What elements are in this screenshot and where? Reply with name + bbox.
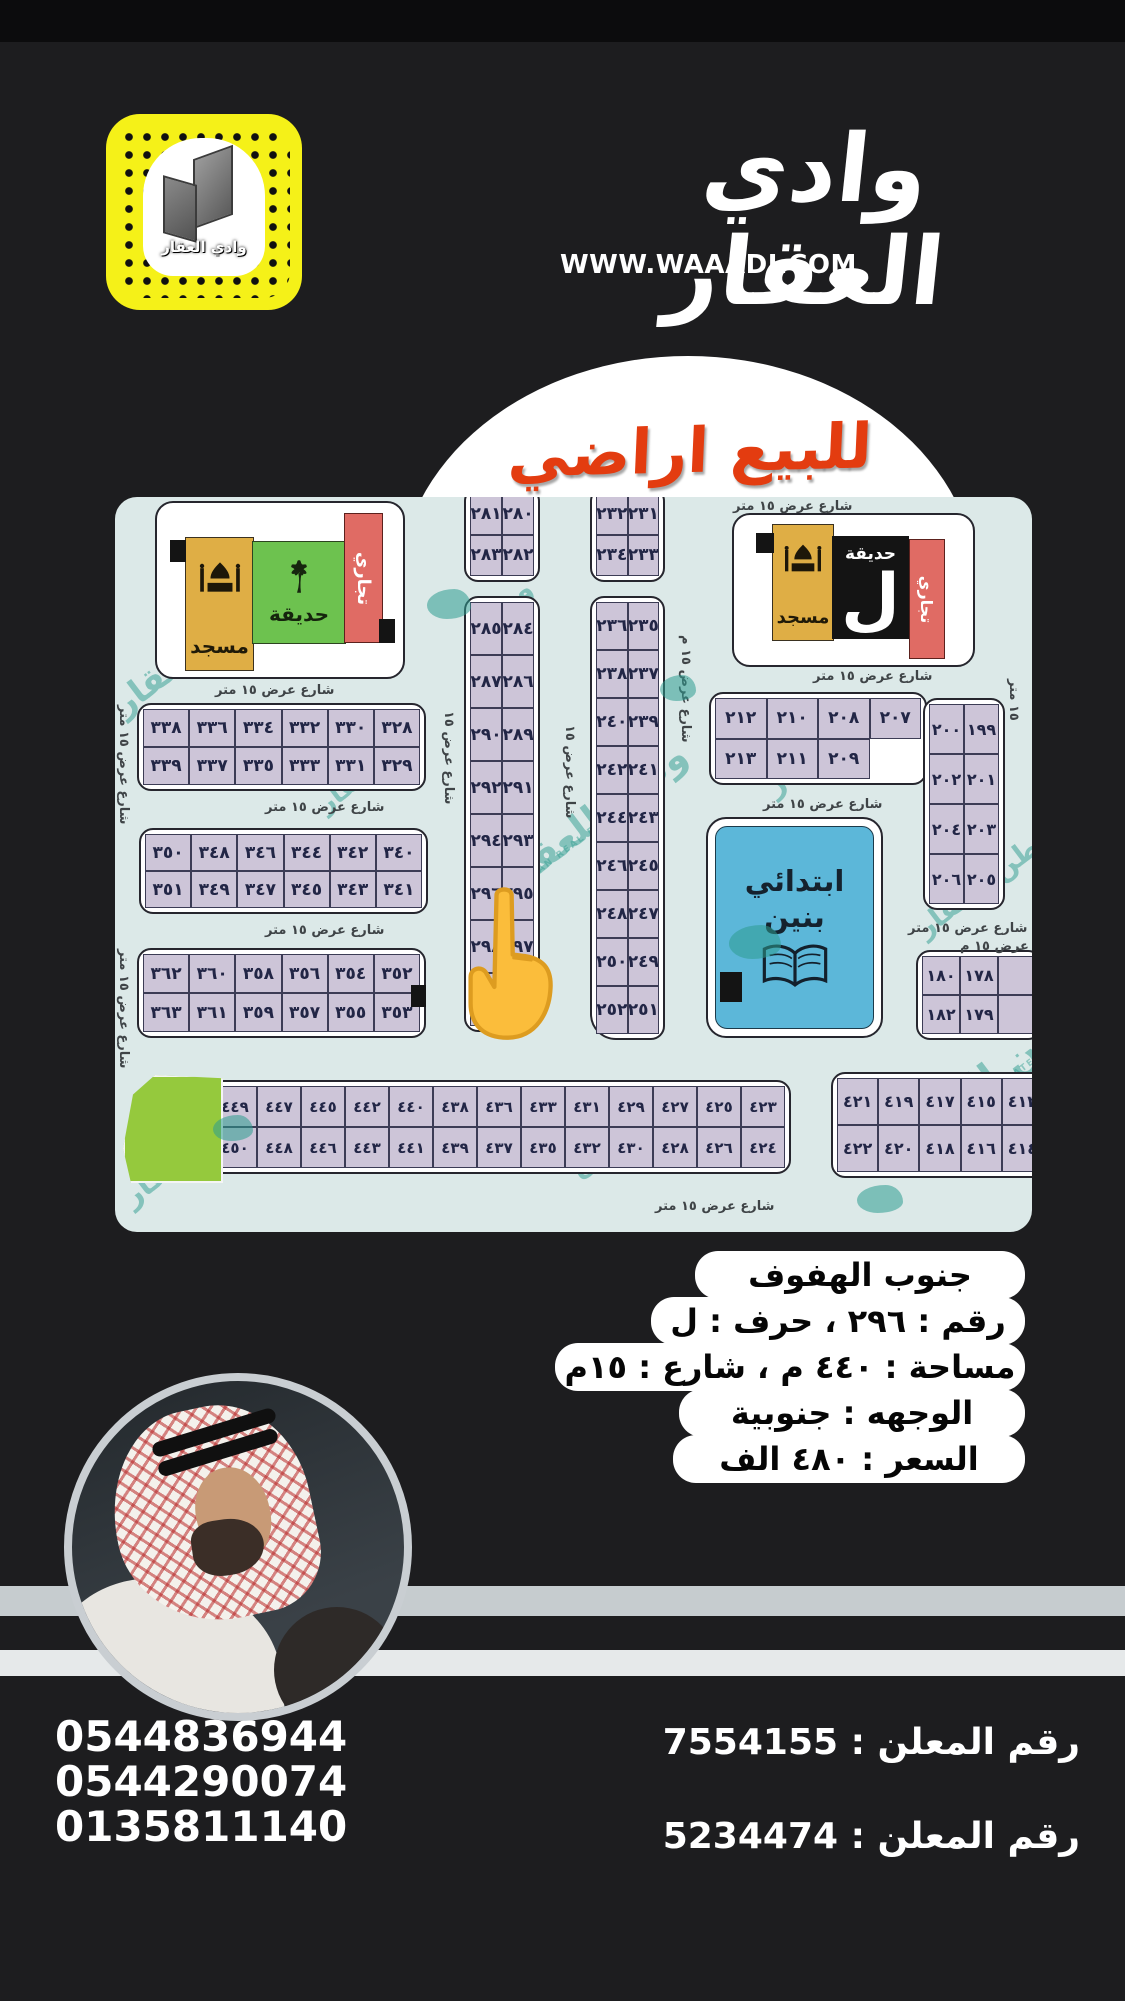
plot-cell: ٤٢٢ xyxy=(837,1125,878,1172)
school-label-line1: ابتدائي xyxy=(745,864,845,898)
commercial-parcel: تجاري xyxy=(909,539,945,659)
plot-grid: ٤٤٩٤٤٧٤٤٥٤٤٢٤٤٠٤٣٨٤٣٦٤٣٣٤٣١٤٢٩٤٢٧٤٢٥٤٢٣٤… xyxy=(213,1086,785,1168)
plot-cell: ٢٠٥ xyxy=(964,854,999,904)
advertiser-number-1: رقم المعلن : 7554155 xyxy=(663,1722,1080,1763)
plot-cell: ٤٣٦ xyxy=(477,1086,521,1127)
plot-cell: ٢٨١ xyxy=(470,497,502,535)
commercial-parcel: تجاري xyxy=(344,513,383,643)
mosque-icon xyxy=(783,543,823,573)
plot-cell: ٤٣٠ xyxy=(609,1127,653,1168)
plot-cell: ٢٨٢ xyxy=(502,535,534,577)
street-label: شارع عرض ١٥ متر xyxy=(763,797,882,812)
plot-cell: ٢٠٦ xyxy=(929,854,964,904)
plot-cell: ٣٣٧ xyxy=(189,747,235,785)
plot-cell: ٤٣١ xyxy=(565,1086,609,1127)
street-label: ١٥ متر xyxy=(1006,679,1021,721)
advertiser-label: رقم المعلن : xyxy=(851,1722,1080,1763)
plot-cell: ٢٨٤ xyxy=(502,602,534,655)
plot-cell: ٣٦٢ xyxy=(143,954,189,993)
plot-cell: ٢٩٠ xyxy=(470,708,502,761)
plot-cell: ٤٢٩ xyxy=(609,1086,653,1127)
plot-cell: ٢٤٤ xyxy=(596,794,628,842)
ad-poster: وادي العقار وادي العقار WWW.WAAADI.COM ل… xyxy=(0,0,1125,2001)
facility-block-east: مسجد حديقة ل تجاري xyxy=(732,513,975,667)
plot-cell: ٢٨٧ xyxy=(470,655,502,708)
plot-cell: ٢٠٣ xyxy=(964,804,999,854)
plot-cell: ٣٥٧ xyxy=(282,993,328,1032)
paint-splotch xyxy=(729,925,781,959)
plot-cell: ٢٠٧ xyxy=(870,698,922,739)
plot-cell: ٢٤٣ xyxy=(628,794,660,842)
plot-cell: ٢٤٦ xyxy=(596,842,628,890)
plot-cell: ٢٩٣ xyxy=(502,814,534,867)
plot-cell: ٤٤٨ xyxy=(257,1127,301,1168)
advertiser-number-2: رقم المعلن : 5234474 xyxy=(663,1816,1080,1857)
banner-title: للبيع اراضي xyxy=(418,407,961,494)
plot-cell: ٣٥٤ xyxy=(328,954,374,993)
plot-cell: ٢٥٠ xyxy=(596,938,628,986)
plot-cell: ٣٣٨ xyxy=(143,709,189,747)
plot-cell: ٢٤٠ xyxy=(596,698,628,746)
garden-label: حديقة xyxy=(269,602,329,626)
snapchat-snapcode: وادي العقار xyxy=(106,114,302,310)
garden-parcel: حديقة xyxy=(252,541,346,644)
plot-cell: ٢٠٨ xyxy=(818,698,870,739)
plot-cell: ٤١٦ xyxy=(961,1125,1002,1172)
listing-price: السعر : ٤٨٠ الف xyxy=(673,1435,1025,1483)
plot-cell: ٢١٣ xyxy=(715,739,767,780)
plot-grid: ٢٨١٢٨٠٢٨٣٢٨٢ xyxy=(470,497,534,576)
phone-number: 0544836944 xyxy=(55,1714,347,1759)
building-icon xyxy=(193,145,233,230)
plot-cell: ٢٣٤ xyxy=(596,535,628,577)
plot-cell: ٢٨٣ xyxy=(470,535,502,577)
plot-cell: ٤١٤ xyxy=(1002,1125,1032,1172)
plot-block-340s: ٣٥٠٣٤٨٣٤٦٣٤٤٣٤٢٣٤٠٣٥١٣٤٩٣٤٧٣٤٥٣٤٣٣٤١ xyxy=(139,828,428,914)
plot-cell: ٣٥٥ xyxy=(328,993,374,1032)
plot-cell: ٢٠٩ xyxy=(818,739,870,780)
street-label: شارع عرض ١٥ متر xyxy=(265,800,384,815)
snapcode-caption: وادي العقار xyxy=(143,238,265,256)
plot-cell: ٢٣٩ xyxy=(628,698,660,746)
plot-cell: ٣٤١ xyxy=(376,871,422,908)
plot-cell: ٢٣٨ xyxy=(596,650,628,698)
school-block: ابتدائي بنين xyxy=(706,817,883,1038)
green-area xyxy=(123,1075,223,1183)
street-label: شارع عرض ١٥ متر xyxy=(215,683,334,698)
plot-block-350s: ٣٦٢٣٦٠٣٥٨٣٥٦٣٥٤٣٥٢٣٦٣٣٦١٣٥٩٣٥٧٣٥٥٣٥٣ xyxy=(137,948,426,1038)
street-label: شارع عرض ١٥ متر xyxy=(733,499,852,514)
plot-cell: ٢٠٠ xyxy=(929,704,964,754)
listing-size-street: مساحة : ٤٤٠ م ، شارع : ١٥م xyxy=(555,1343,1025,1391)
plot-cell: ٤٢١ xyxy=(837,1078,878,1125)
plot-cell: ٢٣٣ xyxy=(628,535,660,577)
plot-cell: ٤١٣ xyxy=(1002,1078,1032,1125)
plot-cell: ٣٣٢ xyxy=(282,709,328,747)
plot-cell: ٤٣٢ xyxy=(565,1127,609,1168)
plot-cell: ١٩٩ xyxy=(964,704,999,754)
plot-cell: ٣٣١ xyxy=(328,747,374,785)
plot-cell: ٣٥٠ xyxy=(145,834,191,871)
advertiser-value: 7554155 xyxy=(663,1722,838,1763)
plot-cell: ٣٤٤ xyxy=(284,834,330,871)
plot-cell: ٤٤٠ xyxy=(389,1086,433,1127)
plot-cell: ٢٥١ xyxy=(628,986,660,1034)
plot-cell: ٤٣٧ xyxy=(477,1127,521,1168)
plot-cell: ٢٤٢ xyxy=(596,746,628,794)
advertiser-value: 5234474 xyxy=(663,1816,838,1857)
plot-cell: ٣٢٨ xyxy=(374,709,420,747)
plot-block-230s-top: ٢٣٢٢٣١٢٣٤٢٣٣ xyxy=(590,497,665,582)
building-icon xyxy=(163,175,197,243)
paint-splotch xyxy=(857,1185,903,1213)
plot-cell xyxy=(998,995,1032,1034)
plot-cell: ٤٢٤ xyxy=(741,1127,785,1168)
plot-cell: ٢٨٦ xyxy=(502,655,534,708)
plot-cell: ٢٩٢ xyxy=(470,761,502,814)
street-label: شارع عرض ١٥ متر xyxy=(265,923,384,938)
mosque-icon xyxy=(198,560,242,594)
plot-cell: ٤٤٢ xyxy=(345,1086,389,1127)
plot-cell: ٢١٢ xyxy=(715,698,767,739)
plot-cell: ٣٣٤ xyxy=(235,709,281,747)
plot-cell: ٤٢٠ xyxy=(878,1125,919,1172)
plot-cell: ٤٢٧ xyxy=(653,1086,697,1127)
plot-cell: ٢٤١ xyxy=(628,746,660,794)
plot-cell: ٣٥٨ xyxy=(235,954,281,993)
agent-photo xyxy=(64,1373,412,1721)
plot-cell: ٣٥٩ xyxy=(235,993,281,1032)
paint-splotch xyxy=(660,675,696,701)
plot-cell: ٤٤٦ xyxy=(301,1127,345,1168)
district-letter: ل xyxy=(841,566,900,634)
plot-cell: ٢٣٧ xyxy=(628,650,660,698)
street-label: شارع عرض ١٥ xyxy=(562,725,577,818)
street-label: شارع عرض ١٥ متر xyxy=(116,705,131,824)
plot-cell: ٢٨٥ xyxy=(470,602,502,655)
street-label: شارع عرض ١٥ xyxy=(441,711,456,804)
plot-cell: ٤٢٦ xyxy=(697,1127,741,1168)
plot-cell: ٣٣٠ xyxy=(328,709,374,747)
snapchat-ghost-icon: وادي العقار xyxy=(143,138,265,276)
plot-grid: ٢٣٦٢٣٥٢٣٨٢٣٧٢٤٠٢٣٩٢٤٢٢٤١٢٤٤٢٤٣٢٤٦٢٤٥٢٤٨٢… xyxy=(596,602,659,1034)
plot-cell: ٤٢٥ xyxy=(697,1086,741,1127)
plot-grid: ٤٢١٤١٩٤١٧٤١٥٤١٣٤٢٢٤٢٠٤١٨٤١٦٤١٤ xyxy=(837,1078,1032,1172)
plot-cell: ٢٣٦ xyxy=(596,602,628,650)
plot-cell: ١٧٩ xyxy=(960,995,998,1034)
plot-cell: ٢٩١ xyxy=(502,761,534,814)
plot-grid: ١٨٠١٧٨ ١٨٢١٧٩ xyxy=(922,956,1032,1034)
plot-grid: ٢٠٠١٩٩٢٠٢٢٠١٢٠٤٢٠٣٢٠٦٢٠٥ xyxy=(929,704,999,904)
mosque-label: مسجد xyxy=(190,634,249,658)
second-person-head xyxy=(274,1607,400,1721)
plot-cell xyxy=(998,956,1032,995)
palm-tree-icon xyxy=(282,560,316,594)
plot-cell: ٢٣٢ xyxy=(596,497,628,535)
street-label: شارع عرض ١٥ م xyxy=(960,939,1032,954)
plot-cell: ٤١٨ xyxy=(919,1125,960,1172)
street-label: شارع عرض ١٥ متر xyxy=(116,949,131,1068)
plot-cell: ٣٣٣ xyxy=(282,747,328,785)
garden-district-parcel: حديقة ل xyxy=(832,536,909,639)
plot-grid: ٢١٢٢١٠٢٠٨٢٠٧٢١٣٢١١٢٠٩ xyxy=(715,698,921,779)
plot-cell: ٢٠٤ xyxy=(929,804,964,854)
plot-cell: ٢٤٥ xyxy=(628,842,660,890)
phone-number: 0544290074 xyxy=(55,1759,347,1804)
plot-cell: ٢٠١ xyxy=(964,754,999,804)
street-label: شارع عرض ١٥ متر xyxy=(813,669,932,684)
plot-cell: ٣٦١ xyxy=(189,993,235,1032)
plot-cell: ٣٥٦ xyxy=(282,954,328,993)
entrance-marker xyxy=(411,985,426,1007)
plot-cell: ٢٨٩ xyxy=(502,708,534,761)
plot-cell: ٣٤٥ xyxy=(284,871,330,908)
plot-cell: ٢٤٨ xyxy=(596,890,628,938)
plot-cell: ٣٣٥ xyxy=(235,747,281,785)
entrance-marker xyxy=(756,533,774,553)
street-label: شارع عرض ١٥ متر xyxy=(908,921,1027,936)
listing-facing: الوجهه : جنوبية xyxy=(679,1389,1025,1437)
plot-cell: ٢٣١ xyxy=(628,497,660,535)
plot-cell: ٣٥١ xyxy=(145,871,191,908)
plot-cell: ٣٦٠ xyxy=(189,954,235,993)
listing-area: جنوب الهفوف xyxy=(695,1251,1025,1299)
plot-block-178-182: ١٨٠١٧٨ ١٨٢١٧٩ xyxy=(916,950,1032,1040)
plot-block-413-422: ٤٢١٤١٩٤١٧٤١٥٤١٣٤٢٢٤٢٠٤١٨٤١٦٤١٤ xyxy=(831,1072,1032,1178)
plot-cell: ٣٤٦ xyxy=(237,834,283,871)
mosque-parcel: مسجد xyxy=(185,537,254,671)
school-parcel: ابتدائي بنين xyxy=(715,826,874,1029)
entrance-marker xyxy=(720,972,742,1002)
plot-cell: ٣٢٩ xyxy=(374,747,420,785)
street-label: شارع عرض ١٥ متر xyxy=(655,1199,774,1214)
plot-cell: ٢٥٢ xyxy=(596,986,628,1034)
plot-cell: ٣٣٩ xyxy=(143,747,189,785)
plot-block-423-450: ٤٤٩٤٤٧٤٤٥٤٤٢٤٤٠٤٣٨٤٣٦٤٣٣٤٣١٤٢٩٤٢٧٤٢٥٤٢٣٤… xyxy=(207,1080,791,1174)
brand-logo-text: وادي العقار xyxy=(534,118,1086,325)
plot-cell: ٣٤٧ xyxy=(237,871,283,908)
pointing-finger-icon xyxy=(449,885,557,1050)
plot-cell: ٤٤١ xyxy=(389,1127,433,1168)
plot-cell: ٢٩٤ xyxy=(470,814,502,867)
plot-block-199-206: ٢٠٠١٩٩٢٠٢٢٠١٢٠٤٢٠٣٢٠٦٢٠٥ xyxy=(923,698,1005,910)
mosque-label: مسجد xyxy=(777,607,830,628)
commercial-label: تجاري xyxy=(918,575,937,622)
plot-cell: ٤٢٨ xyxy=(653,1127,697,1168)
plot-cell: ٤٣٣ xyxy=(521,1086,565,1127)
entrance-marker xyxy=(170,540,186,562)
paint-splotch xyxy=(427,589,471,619)
plot-block-230s-main: ٢٣٦٢٣٥٢٣٨٢٣٧٢٤٠٢٣٩٢٤٢٢٤١٢٤٤٢٤٣٢٤٦٢٤٥٢٤٨٢… xyxy=(590,596,665,1040)
plot-cell: ٤١٧ xyxy=(919,1078,960,1125)
plot-cell: ٣٤٩ xyxy=(191,871,237,908)
plot-cell: ٤٣٩ xyxy=(433,1127,477,1168)
plot-cell: ٣٣٦ xyxy=(189,709,235,747)
plot-block-330s: ٣٣٨٣٣٦٣٣٤٣٣٢٣٣٠٣٢٨٣٣٩٣٣٧٣٣٥٣٣٣٣٣١٣٢٩ xyxy=(137,703,426,791)
plot-cell: ٤٣٥ xyxy=(521,1127,565,1168)
plot-block-280s-top: ٢٨١٢٨٠٢٨٣٢٨٢ xyxy=(464,497,540,582)
paint-splotch xyxy=(213,1115,253,1141)
plot-cell: ٢١٠ xyxy=(767,698,819,739)
plot-cell: ٣٤٣ xyxy=(330,871,376,908)
plot-cell: ٢٤٩ xyxy=(628,938,660,986)
plot-grid: ٣٦٢٣٦٠٣٥٨٣٥٦٣٥٤٣٥٢٣٦٣٣٦١٣٥٩٣٥٧٣٥٥٣٥٣ xyxy=(143,954,420,1032)
entrance-marker xyxy=(379,619,395,643)
phone-numbers: 0544836944 0544290074 0135811140 xyxy=(55,1714,347,1849)
plot-cell: ٢٨٠ xyxy=(502,497,534,535)
plot-cell: ٤١٩ xyxy=(878,1078,919,1125)
plot-cell: ٤٤٥ xyxy=(301,1086,345,1127)
plot-cell: ٢١١ xyxy=(767,739,819,780)
top-band xyxy=(0,0,1125,42)
plot-block-207-213: ٢١٢٢١٠٢٠٨٢٠٧٢١٣٢١١٢٠٩ xyxy=(709,692,927,785)
plot-cell: ١٧٨ xyxy=(960,956,998,995)
plot-cell: ٤٤٣ xyxy=(345,1127,389,1168)
plot-grid: ٣٣٨٣٣٦٣٣٤٣٣٢٣٣٠٣٢٨٣٣٩٣٣٧٣٣٥٣٣٣٣٣١٣٢٩ xyxy=(143,709,420,785)
commercial-label: تجاري xyxy=(353,551,374,604)
plot-grid: ٢٣٢٢٣١٢٣٤٢٣٣ xyxy=(596,497,659,576)
plot-cell: ١٨٢ xyxy=(922,995,960,1034)
plot-map: وطن لللعقاروطنالعقاروطن للعقارWATAN REAL… xyxy=(115,497,1032,1232)
plot-cell: ٤٤٧ xyxy=(257,1086,301,1127)
plot-grid: ٣٥٠٣٤٨٣٤٦٣٤٤٣٤٢٣٤٠٣٥١٣٤٩٣٤٧٣٤٥٣٤٣٣٤١ xyxy=(145,834,422,908)
mosque-parcel: مسجد xyxy=(772,524,834,641)
plot-cell: ٤٣٨ xyxy=(433,1086,477,1127)
listing-plot-number: رقم : ٢٩٦ ، حرف : ل xyxy=(651,1297,1025,1345)
plot-cell: ٢٠٢ xyxy=(929,754,964,804)
plot-cell: ٣٦٣ xyxy=(143,993,189,1032)
plot-cell: ٣٤٢ xyxy=(330,834,376,871)
plot-cell: ٢٤٧ xyxy=(628,890,660,938)
plot-cell: ٤١٥ xyxy=(961,1078,1002,1125)
plot-cell: ٢٣٥ xyxy=(628,602,660,650)
plot-cell: ٤٢٣ xyxy=(741,1086,785,1127)
advertiser-label: رقم المعلن : xyxy=(851,1816,1080,1857)
brand-website: WWW.WAAADI.COM xyxy=(560,250,857,280)
facility-block-west: مسجد حديقة تجاري xyxy=(155,501,405,679)
plot-cell: ٣٤٨ xyxy=(191,834,237,871)
plot-cell: ٣٤٠ xyxy=(376,834,422,871)
phone-number: 0135811140 xyxy=(55,1804,347,1849)
plot-cell: ١٨٠ xyxy=(922,956,960,995)
